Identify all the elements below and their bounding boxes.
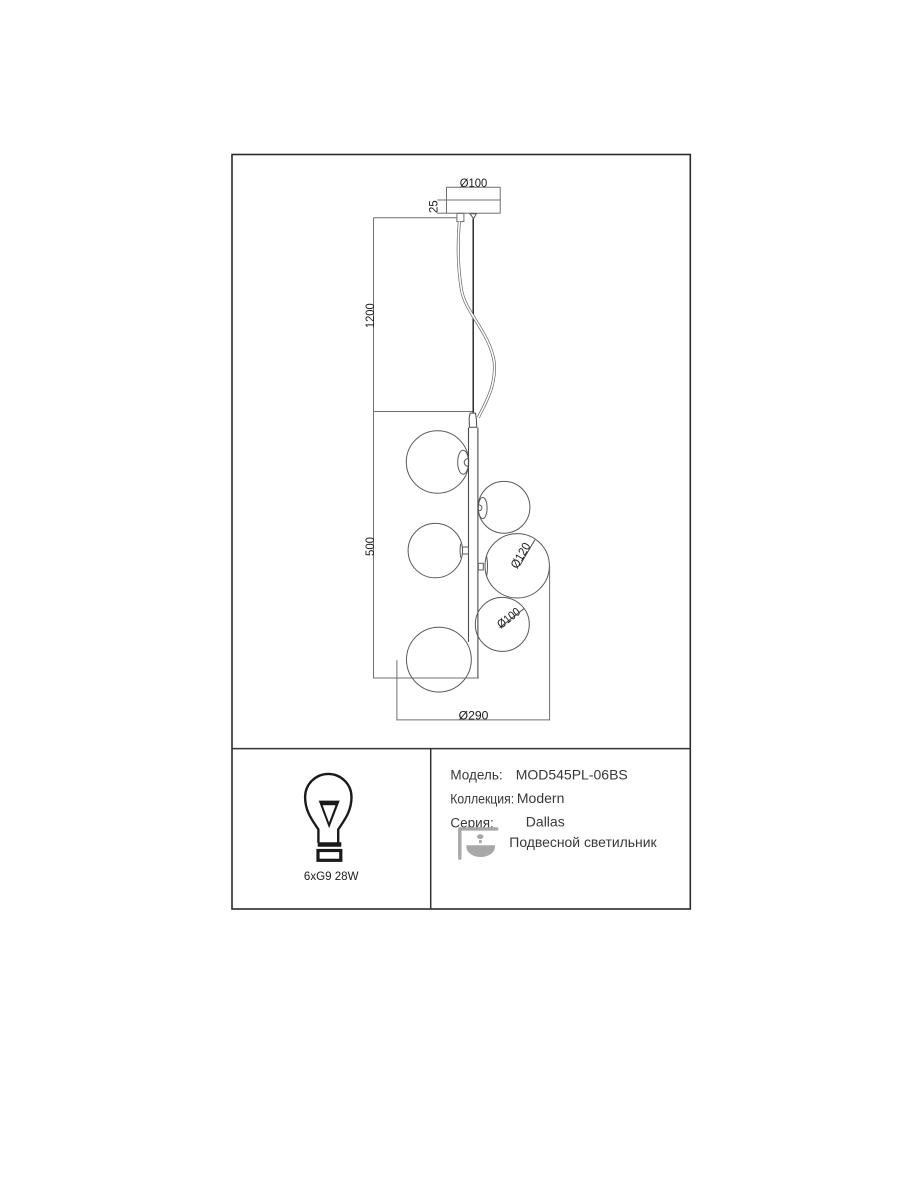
svg-text:Коллекция:: Коллекция: [450, 791, 514, 806]
svg-text:Dallas: Dallas [526, 814, 565, 830]
svg-text:Ø120: Ø120 [508, 540, 534, 571]
svg-text:MOD545PL-06BS: MOD545PL-06BS [516, 767, 628, 783]
svg-text:Ø290: Ø290 [459, 708, 489, 722]
svg-text:6xG9 28W: 6xG9 28W [304, 870, 359, 883]
svg-text:Подвесной светильник: Подвесной светильник [509, 834, 657, 850]
svg-text:Ø100: Ø100 [460, 176, 488, 190]
svg-text:Модель:: Модель: [450, 768, 502, 783]
svg-text:Modern: Modern [517, 790, 564, 806]
svg-text:500: 500 [363, 537, 377, 556]
svg-text:Ø100: Ø100 [494, 604, 523, 631]
svg-text:25: 25 [427, 200, 441, 213]
svg-text:1200: 1200 [363, 303, 377, 328]
